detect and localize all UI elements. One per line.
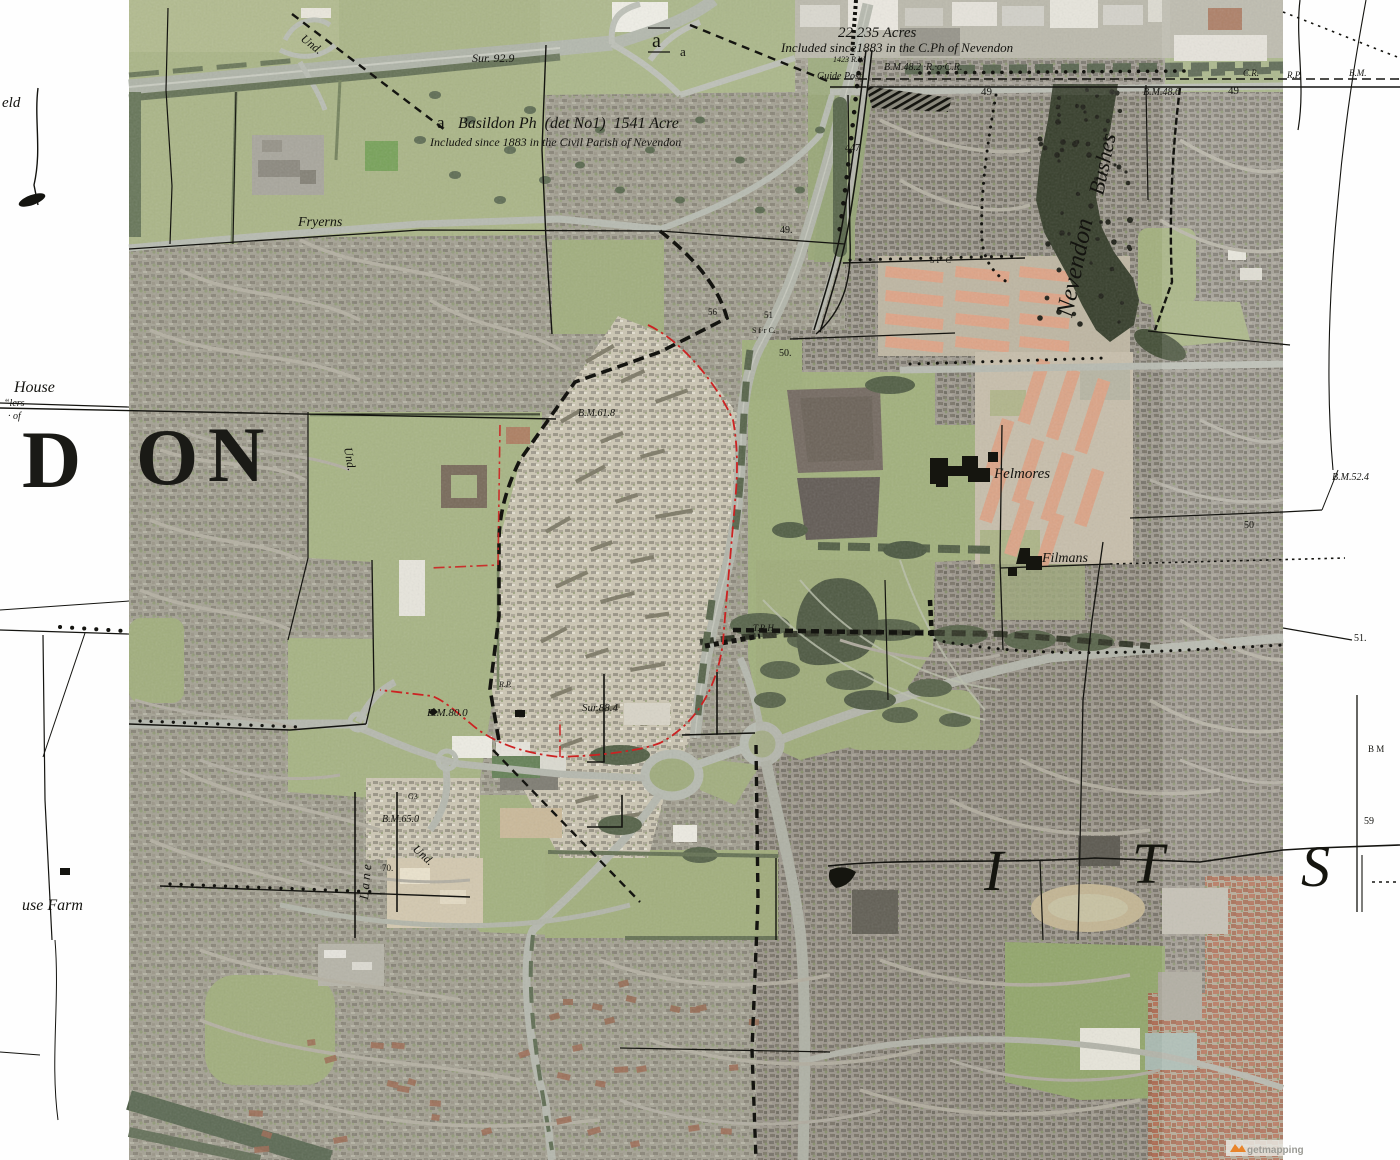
svg-text:49.: 49.: [780, 225, 793, 236]
svg-text:Sur.88.4: Sur.88.4: [582, 702, 619, 714]
svg-text:B M: B M: [1368, 744, 1384, 754]
svg-text:N: N: [208, 411, 264, 498]
svg-text:22·235 Acres: 22·235 Acres: [838, 25, 916, 41]
svg-text:“lers: “lers: [4, 398, 25, 409]
svg-text:49: 49: [1228, 85, 1240, 97]
svg-text:G3: G3: [408, 792, 418, 801]
svg-text:L a n e: L a n e: [356, 863, 374, 901]
svg-text:R.P.: R.P.: [498, 680, 512, 689]
svg-text:use Farm: use Farm: [22, 897, 83, 914]
svg-text:S P· C: S P· C: [930, 256, 951, 265]
svg-text:I: I: [983, 838, 1006, 903]
svg-text:Guide Post: Guide Post: [817, 71, 862, 82]
svg-text:T.R.H.: T.R.H.: [753, 623, 776, 633]
svg-text:B.M.65.0: B.M.65.0: [382, 814, 419, 825]
svg-text:S: S: [1301, 834, 1330, 899]
svg-text:56: 56: [708, 307, 718, 317]
svg-text:Filmans: Filmans: [1041, 551, 1088, 566]
svg-text:D: D: [22, 414, 81, 505]
svg-text:B.M.61.8: B.M.61.8: [578, 408, 615, 419]
svg-text:B.M.52.4: B.M.52.4: [1332, 472, 1369, 483]
svg-text:eld: eld: [2, 95, 21, 111]
svg-text:447: 447: [845, 143, 860, 154]
svg-text:B.M.48.6: B.M.48.6: [1143, 87, 1180, 98]
svg-text:50: 50: [1244, 520, 1254, 531]
svg-text:51.: 51.: [1354, 633, 1367, 644]
svg-text:B.M.48.2 ·R.·o·C.R.: B.M.48.2 ·R.·o·C.R.: [884, 62, 962, 73]
svg-text:1423 R.W.: 1423 R.W.: [833, 55, 866, 64]
svg-text:70.: 70.: [382, 863, 393, 873]
svg-text:a: a: [437, 113, 445, 132]
svg-text:Included since1883 in the C.P​: Included since1883 in the C.P​h of Neven…: [780, 40, 1013, 55]
svg-text:49: 49: [981, 86, 993, 98]
svg-text:a: a: [680, 44, 686, 59]
svg-text:a: a: [652, 30, 661, 52]
svg-text:S f·r C.: S f·r C.: [752, 326, 776, 335]
svg-text:House: House: [13, 379, 55, 396]
svg-text:O: O: [136, 414, 198, 502]
svg-text:Sur. 92.9: Sur. 92.9: [472, 51, 514, 65]
svg-text:B.M.: B.M.: [1349, 68, 1367, 78]
svg-text:· of: · of: [8, 411, 22, 422]
svg-text:Included since 1883 in the Civ: Included since 1883 in the Civil Parish …: [429, 135, 681, 149]
svg-text:T: T: [1132, 831, 1168, 896]
svg-text:getmapping: getmapping: [1247, 1145, 1304, 1156]
svg-text:50.: 50.: [779, 348, 792, 359]
svg-text:59: 59: [1364, 816, 1374, 827]
svg-text:C.R.: C.R.: [1243, 68, 1259, 78]
svg-text:R.P.: R.P.: [1286, 70, 1301, 80]
svg-text:Felmores: Felmores: [993, 466, 1050, 482]
svg-text:51: 51: [764, 310, 773, 320]
svg-text:Basildon P​h (det No1) 1541: Basildon P​h (det No1) 1541 Acre: [458, 115, 679, 132]
svg-text:Fryerns: Fryerns: [297, 215, 343, 230]
